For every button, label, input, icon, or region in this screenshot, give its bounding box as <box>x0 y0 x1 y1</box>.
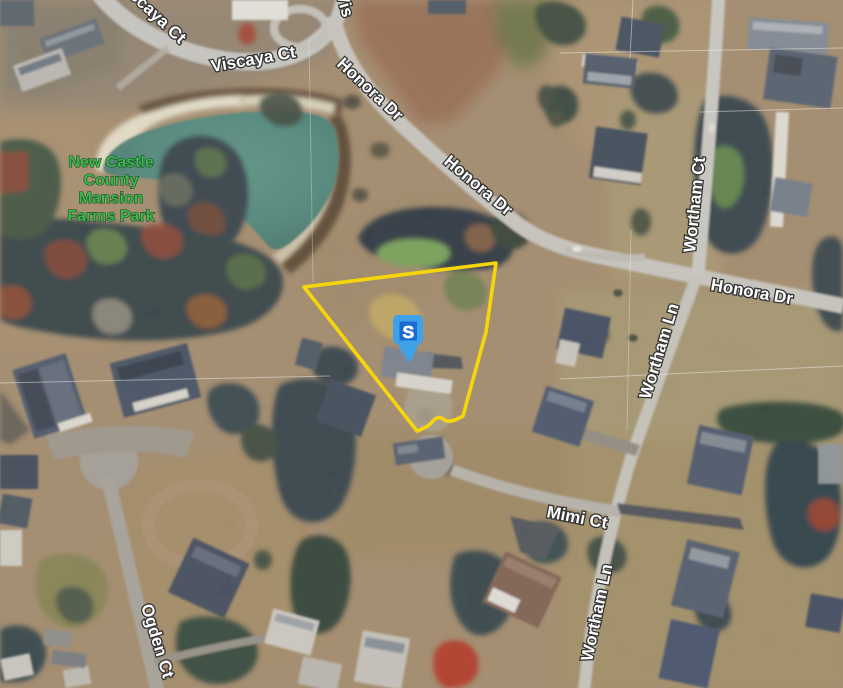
svg-text:New Castle: New Castle <box>68 154 153 171</box>
svg-text:S: S <box>402 322 414 342</box>
svg-text:Mansion: Mansion <box>79 190 144 207</box>
svg-text:County: County <box>83 172 138 189</box>
svg-text:Farms Park: Farms Park <box>67 208 154 225</box>
